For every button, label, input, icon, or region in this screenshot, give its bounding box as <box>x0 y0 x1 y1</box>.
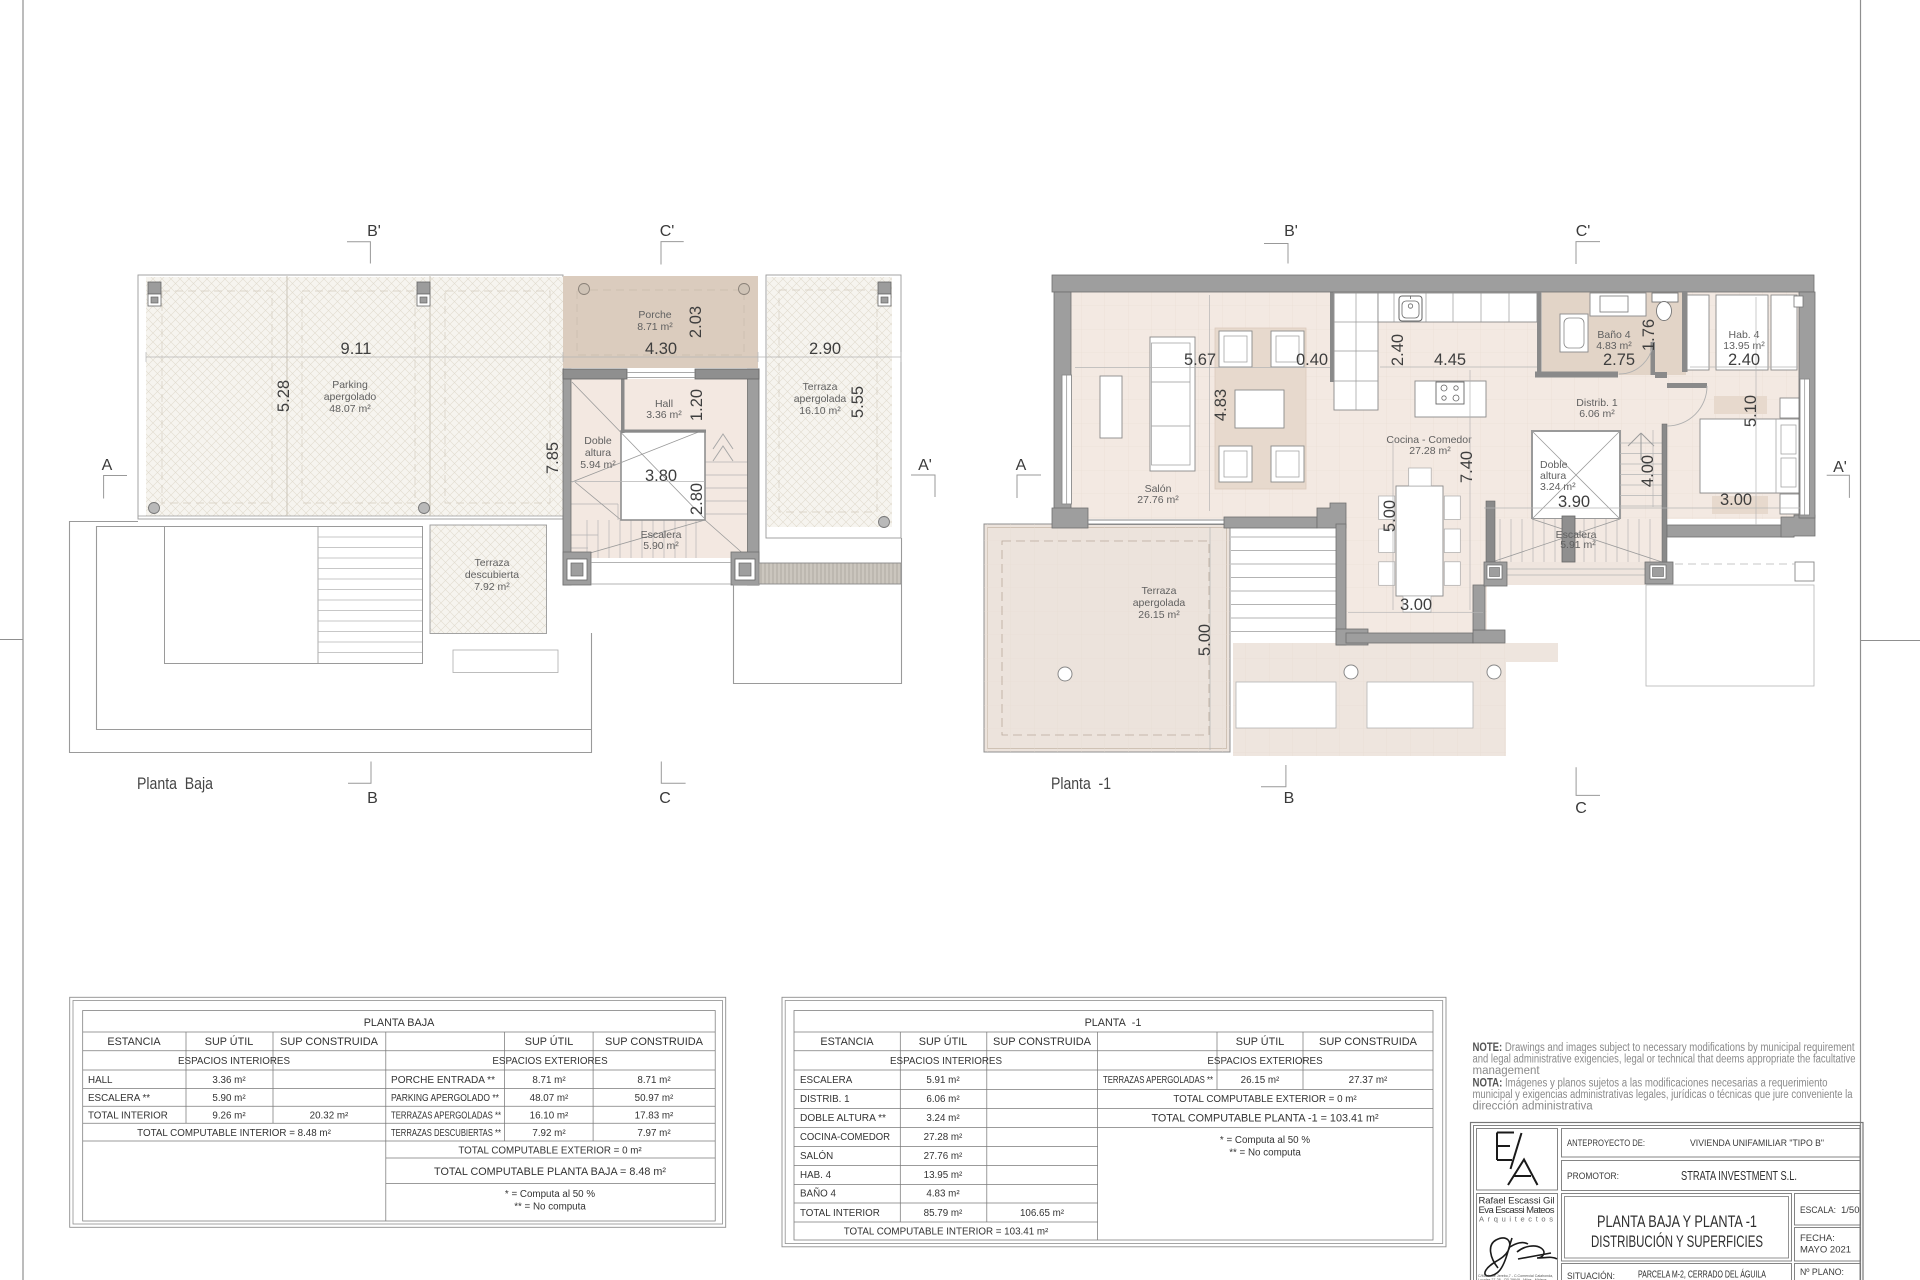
svg-text:municipal y exigencias adminis: municipal y exigencias administrativas l… <box>1473 1089 1853 1101</box>
svg-text:NOTE: Drawings and images subj: NOTE: Drawings and images subject to nec… <box>1473 1042 1856 1054</box>
svg-text:apergolada: apergolada <box>1133 597 1186 609</box>
svg-text:* = Computa al 50 %: * = Computa al 50 % <box>505 1189 595 1200</box>
svg-text:descubierta: descubierta <box>465 569 519 581</box>
svg-text:TOTAL COMPUTABLE EXTERIOR = 0: TOTAL COMPUTABLE EXTERIOR = 0 m² <box>1173 1094 1357 1105</box>
svg-text:7.40: 7.40 <box>1458 451 1476 483</box>
svg-text:DISTRIB. 1: DISTRIB. 1 <box>800 1094 850 1105</box>
svg-text:apergolado: apergolado <box>324 391 377 403</box>
svg-text:ESPACIOS EXTERIORES: ESPACIOS EXTERIORES <box>1207 1056 1323 1067</box>
svg-text:2.03: 2.03 <box>687 306 705 338</box>
svg-text:SUP ÚTIL: SUP ÚTIL <box>205 1035 253 1048</box>
svg-text:26.15 m²: 26.15 m² <box>1138 609 1180 621</box>
svg-text:Nº PLANO:: Nº PLANO: <box>1800 1267 1844 1278</box>
svg-text:ESPACIOS INTERIORES: ESPACIOS INTERIORES <box>890 1056 1002 1067</box>
svg-text:5.91 m²: 5.91 m² <box>926 1075 960 1086</box>
svg-text:C': C' <box>660 223 675 240</box>
svg-text:B': B' <box>367 223 381 240</box>
svg-text:48.07 m²: 48.07 m² <box>329 403 371 415</box>
svg-text:TERRAZAS APERGOLADAS **: TERRAZAS APERGOLADAS ** <box>391 1111 501 1122</box>
svg-text:3.24 m²: 3.24 m² <box>1540 481 1576 493</box>
svg-text:1.20: 1.20 <box>688 389 706 421</box>
svg-text:Terraza: Terraza <box>1141 585 1176 597</box>
svg-text:4.30: 4.30 <box>645 340 677 358</box>
svg-text:9.11: 9.11 <box>341 340 372 358</box>
svg-text:8.71 m²: 8.71 m² <box>532 1075 566 1086</box>
svg-text:ESCALERA: ESCALERA <box>800 1075 853 1086</box>
svg-text:* = Computa al 50 %: * = Computa al 50 % <box>1220 1135 1310 1146</box>
svg-text:SALÓN: SALÓN <box>800 1151 833 1162</box>
svg-text:ESTANCIA: ESTANCIA <box>820 1036 874 1048</box>
svg-text:Doble: Doble <box>584 435 612 447</box>
svg-text:85.79 m²: 85.79 m² <box>924 1208 963 1219</box>
svg-text:4.00: 4.00 <box>1639 455 1657 487</box>
svg-text:TOTAL COMPUTABLE EXTERIOR = 0: TOTAL COMPUTABLE EXTERIOR = 0 m² <box>458 1146 642 1157</box>
svg-text:NOTA: Imágenes y planos sujeto: NOTA: Imágenes y planos sujetos a las mo… <box>1473 1078 1828 1090</box>
svg-text:PORCHE ENTRADA **: PORCHE ENTRADA ** <box>391 1075 495 1086</box>
svg-text:3.36 m²: 3.36 m² <box>212 1075 246 1086</box>
svg-text:C: C <box>659 790 671 807</box>
svg-text:PARCELA M-2, CERRADO DEL ÁGUIL: PARCELA M-2, CERRADO DEL ÁGUILA <box>1638 1268 1766 1280</box>
svg-text:C': C' <box>1576 223 1591 240</box>
svg-text:SUP ÚTIL: SUP ÚTIL <box>525 1035 573 1048</box>
svg-text:PARKING APERGOLADO **: PARKING APERGOLADO ** <box>391 1093 499 1104</box>
svg-text:4.45: 4.45 <box>1434 351 1466 369</box>
svg-text:C: C <box>1575 800 1587 817</box>
svg-text:3.00: 3.00 <box>1400 596 1432 614</box>
svg-text:SITUACIÓN:: SITUACIÓN: <box>1567 1271 1615 1280</box>
svg-text:Parking: Parking <box>332 379 368 391</box>
svg-text:** = No computa: ** = No computa <box>1229 1148 1301 1159</box>
svg-text:5.00: 5.00 <box>1381 500 1399 532</box>
svg-text:Terraza: Terraza <box>802 381 837 393</box>
svg-text:and legal administrative exige: and legal administrative exigencies, leg… <box>1473 1054 1856 1066</box>
svg-text:17.83 m²: 17.83 m² <box>635 1111 674 1122</box>
svg-text:26.15 m²: 26.15 m² <box>1241 1075 1280 1086</box>
svg-text:8.71 m²: 8.71 m² <box>637 321 673 333</box>
svg-text:3.24 m²: 3.24 m² <box>926 1113 960 1124</box>
svg-text:9.26 m²: 9.26 m² <box>212 1111 246 1122</box>
svg-text:SUP ÚTIL: SUP ÚTIL <box>1236 1035 1284 1048</box>
svg-text:BAÑO 4: BAÑO 4 <box>800 1189 836 1200</box>
svg-text:6.06 m²: 6.06 m² <box>926 1094 960 1105</box>
svg-text:5.00: 5.00 <box>1196 624 1214 656</box>
svg-text:48.07 m²: 48.07 m² <box>530 1093 569 1104</box>
svg-text:7.97 m²: 7.97 m² <box>637 1128 671 1139</box>
svg-text:FECHA:: FECHA: <box>1800 1233 1835 1244</box>
svg-text:DOBLE ALTURA **: DOBLE ALTURA ** <box>800 1113 886 1124</box>
svg-text:A': A' <box>1833 459 1847 476</box>
svg-text:ESPACIOS EXTERIORES: ESPACIOS EXTERIORES <box>492 1056 608 1067</box>
svg-text:3.00: 3.00 <box>1720 491 1752 509</box>
svg-text:MAYO 2021: MAYO 2021 <box>1800 1245 1851 1256</box>
svg-text:7.85: 7.85 <box>544 442 562 474</box>
svg-text:106.65 m²: 106.65 m² <box>1020 1208 1065 1219</box>
svg-text:5.90 m²: 5.90 m² <box>643 540 679 552</box>
svg-text:5.90 m²: 5.90 m² <box>212 1093 246 1104</box>
svg-text:5.67: 5.67 <box>1184 351 1216 369</box>
svg-text:Terraza: Terraza <box>474 557 509 569</box>
svg-text:A': A' <box>918 457 932 474</box>
svg-text:dirección administrativa: dirección administrativa <box>1473 1101 1594 1113</box>
svg-text:7.92 m²: 7.92 m² <box>474 581 510 593</box>
svg-text:0.40: 0.40 <box>1296 351 1328 369</box>
svg-text:50.97 m²: 50.97 m² <box>635 1093 674 1104</box>
svg-text:TOTAL COMPUTABLE PLANTA -1 = 1: TOTAL COMPUTABLE PLANTA -1 = 103.41 m² <box>1151 1113 1379 1125</box>
svg-text:ESCALERA **: ESCALERA ** <box>88 1093 150 1104</box>
svg-text:B: B <box>367 790 378 807</box>
svg-text:B: B <box>1284 790 1295 807</box>
svg-text:2.75: 2.75 <box>1603 351 1635 369</box>
svg-text:TOTAL COMPUTABLE INTERIOR = 10: TOTAL COMPUTABLE INTERIOR = 103.41 m² <box>844 1227 1049 1238</box>
svg-text:2.40: 2.40 <box>1728 351 1760 369</box>
svg-text:5.94 m²: 5.94 m² <box>580 459 616 471</box>
svg-text:13.95 m²: 13.95 m² <box>924 1170 963 1181</box>
svg-text:PLANTA BAJA Y PLANTA -1: PLANTA BAJA Y PLANTA -1 <box>1597 1212 1757 1231</box>
svg-text:6.06 m²: 6.06 m² <box>1579 408 1615 420</box>
svg-text:3.36 m²: 3.36 m² <box>646 409 682 421</box>
svg-text:altura: altura <box>585 447 611 459</box>
svg-text:TOTAL INTERIOR: TOTAL INTERIOR <box>88 1111 168 1122</box>
svg-text:3.80: 3.80 <box>645 467 677 485</box>
svg-text:Planta -1: Planta -1 <box>1051 774 1111 793</box>
svg-text:management: management <box>1473 1065 1541 1077</box>
svg-text:SUP CONSTRUIDA: SUP CONSTRUIDA <box>1319 1036 1418 1048</box>
svg-text:PROMOTOR:: PROMOTOR: <box>1567 1171 1619 1182</box>
svg-text:SUP CONSTRUIDA: SUP CONSTRUIDA <box>605 1036 704 1048</box>
svg-text:PLANTA BAJA: PLANTA BAJA <box>364 1017 435 1029</box>
svg-text:ESCALA:: ESCALA: <box>1800 1205 1836 1216</box>
svg-text:7.92 m²: 7.92 m² <box>532 1128 566 1139</box>
svg-text:ESTANCIA: ESTANCIA <box>107 1036 161 1048</box>
svg-text:5.10: 5.10 <box>1742 395 1760 427</box>
svg-text:PLANTA -1: PLANTA -1 <box>1085 1017 1142 1029</box>
svg-text:A: A <box>102 457 113 474</box>
svg-text:A: A <box>1016 457 1027 474</box>
svg-text:TERRAZAS APERGOLADAS **: TERRAZAS APERGOLADAS ** <box>1103 1075 1213 1086</box>
svg-text:20.32 m²: 20.32 m² <box>310 1111 349 1122</box>
svg-text:Porche: Porche <box>638 309 671 321</box>
svg-text:27.28 m²: 27.28 m² <box>1409 445 1451 457</box>
svg-text:1/50: 1/50 <box>1841 1205 1860 1216</box>
svg-text:COCINA-COMEDOR: COCINA-COMEDOR <box>800 1132 890 1143</box>
svg-text:SUP CONSTRUIDA: SUP CONSTRUIDA <box>280 1036 379 1048</box>
svg-text:Arquitectos: Arquitectos <box>1479 1215 1553 1224</box>
svg-text:STRATA INVESTMENT S.L.: STRATA INVESTMENT S.L. <box>1681 1168 1797 1183</box>
svg-text:5.55: 5.55 <box>849 386 867 418</box>
svg-text:VIVIENDA UNIFAMILIAR "TIPO B": VIVIENDA UNIFAMILIAR "TIPO B" <box>1690 1138 1824 1149</box>
svg-text:16.10 m²: 16.10 m² <box>799 405 841 417</box>
svg-text:apergolada: apergolada <box>794 393 847 405</box>
svg-text:4.83 m²: 4.83 m² <box>926 1189 960 1200</box>
svg-text:SUP CONSTRUIDA: SUP CONSTRUIDA <box>993 1036 1092 1048</box>
svg-text:5.28: 5.28 <box>275 380 293 412</box>
svg-text:2.80: 2.80 <box>688 483 706 515</box>
svg-text:27.28 m²: 27.28 m² <box>924 1132 963 1143</box>
svg-text:5.91 m²: 5.91 m² <box>1560 539 1596 551</box>
svg-text:8.71 m²: 8.71 m² <box>637 1075 671 1086</box>
svg-text:2.40: 2.40 <box>1389 334 1407 366</box>
svg-text:DISTRIBUCIÓN Y SUPERFICIES: DISTRIBUCIÓN Y SUPERFICIES <box>1591 1232 1763 1251</box>
svg-text:4.83: 4.83 <box>1212 389 1230 421</box>
svg-text:SUP ÚTIL: SUP ÚTIL <box>919 1035 967 1048</box>
svg-text:HALL: HALL <box>88 1075 113 1086</box>
svg-text:** = No computa: ** = No computa <box>514 1202 586 1213</box>
svg-text:Planta Baja: Planta Baja <box>137 774 213 793</box>
svg-text:TOTAL COMPUTABLE PLANTA BAJA =: TOTAL COMPUTABLE PLANTA BAJA = 8.48 m² <box>434 1166 666 1178</box>
svg-text:27.76 m²: 27.76 m² <box>1137 494 1179 506</box>
svg-text:HAB. 4: HAB. 4 <box>800 1170 832 1181</box>
svg-text:B': B' <box>1284 223 1298 240</box>
svg-text:TERRAZAS DESCUBIERTAS **: TERRAZAS DESCUBIERTAS ** <box>391 1128 501 1139</box>
svg-text:16.10 m²: 16.10 m² <box>530 1111 569 1122</box>
svg-text:1.76: 1.76 <box>1640 319 1658 351</box>
svg-text:ESPACIOS INTERIORES: ESPACIOS INTERIORES <box>178 1056 290 1067</box>
svg-text:ANTEPROYECTO DE:: ANTEPROYECTO DE: <box>1567 1138 1645 1149</box>
svg-text:27.37 m²: 27.37 m² <box>1349 1075 1388 1086</box>
svg-text:2.90: 2.90 <box>809 340 841 358</box>
svg-text:TOTAL INTERIOR: TOTAL INTERIOR <box>800 1208 880 1219</box>
svg-text:TOTAL COMPUTABLE INTERIOR = 8.: TOTAL COMPUTABLE INTERIOR = 8.48 m² <box>137 1128 331 1139</box>
svg-text:27.76 m²: 27.76 m² <box>924 1151 963 1162</box>
